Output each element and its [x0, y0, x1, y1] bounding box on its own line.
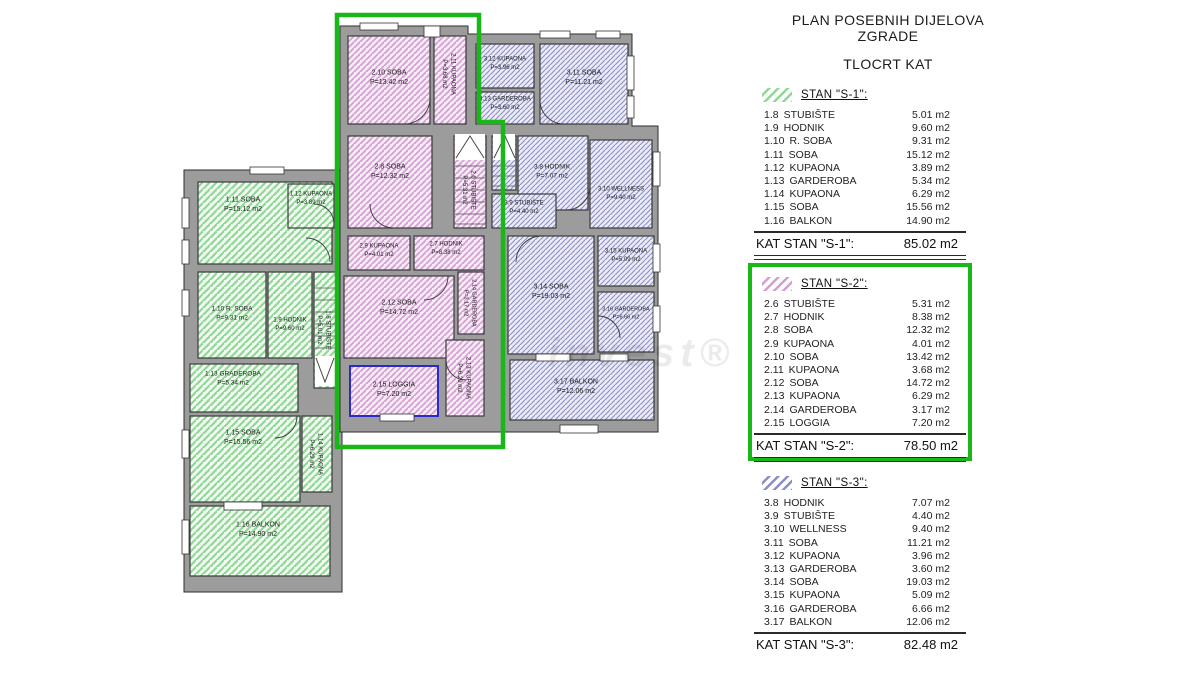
window-slot [360, 23, 398, 30]
window-slot [653, 306, 660, 332]
row-area-value: 6.29 m2 [912, 188, 950, 201]
row-area-value: 19.03 m2 [906, 576, 950, 589]
row-label: 3.12KUPAONA [764, 550, 840, 563]
room-1.16: 1.16 BALKONP=14.90 m2 [190, 506, 330, 576]
row-area-value: 6.66 m2 [912, 603, 950, 616]
table-row: 2.15LOGGIA7.20 m2 [764, 417, 950, 430]
row-number: 2.8 [764, 324, 779, 337]
row-label: 1.16BALKON [764, 215, 832, 228]
row-label: 1.8STUBIŠTE [764, 109, 835, 122]
total-value: 85.02 m2 [904, 236, 958, 251]
table-row: 1.11SOBA15.12 m2 [764, 149, 950, 162]
table-row: 3.14SOBA19.03 m2 [764, 576, 950, 589]
window-slot [380, 414, 414, 421]
row-label: 2.7HODNIK [764, 311, 824, 324]
window-slot [653, 244, 660, 272]
row-area-value: 5.09 m2 [912, 589, 950, 602]
row-number: 1.10 [764, 135, 784, 148]
row-area-value: 5.34 m2 [912, 175, 950, 188]
window-slot [596, 31, 620, 38]
table-row: 3.8HODNIK7.07 m2 [764, 497, 950, 510]
table-row: 1.14KUPAONA6.29 m2 [764, 188, 950, 201]
apartment-table-s3: STAN "S-3":3.8HODNIK7.07 m23.9STUBIŠTE4.… [754, 476, 966, 654]
row-label: 1.12KUPAONA [764, 162, 840, 175]
room-2.12: 2.12 SOBAP=14.72 m2 [344, 276, 454, 358]
room-3.10: 3.10 WELLNESSP=9.40 m2 [590, 140, 652, 228]
window-slot [250, 167, 284, 174]
row-area-value: 9.40 m2 [912, 523, 950, 536]
table-row: 3.12KUPAONA3.96 m2 [764, 550, 950, 563]
table-row: 2.14GARDEROBA3.17 m2 [764, 404, 950, 417]
row-label: 2.11KUPAONA [764, 364, 839, 377]
table-row: 1.12KUPAONA3.89 m2 [764, 162, 950, 175]
table-row: 2.7HODNIK8.38 m2 [764, 311, 950, 324]
room-1.12: 1.12 KUPAONAP=3.89 m2 [288, 184, 334, 228]
room-2.7: 2.7 HODNIKP=8.38 m2 [414, 236, 484, 270]
row-number: 3.9 [764, 510, 779, 523]
row-area-value: 5.31 m2 [912, 298, 950, 311]
window-slot [182, 290, 189, 316]
table-row: 1.10R. SOBA9.31 m2 [764, 135, 950, 148]
double-rule [754, 457, 966, 462]
row-number: 2.12 [764, 377, 784, 390]
row-area-value: 3.17 m2 [912, 404, 950, 417]
room-2.10: 2.10 SOBAP=13.42 m2 [348, 36, 430, 124]
room-2.15: 2.15 LOGGIAP=7.20 m2 [350, 366, 438, 416]
row-number: 2.6 [764, 298, 779, 311]
table-row: 3.9STUBIŠTE4.40 m2 [764, 510, 950, 523]
total-row: KAT STAN "S-3":82.48 m2 [754, 632, 966, 654]
table-header-label: STAN "S-1": [801, 89, 868, 101]
row-label: 3.15KUPAONA [764, 589, 840, 602]
row-area-value: 7.20 m2 [912, 417, 950, 430]
row-label: 2.9KUPAONA [764, 338, 834, 351]
table-header-label: STAN "S-3": [801, 477, 868, 489]
row-number: 3.16 [764, 603, 784, 616]
room-1.9: 1.9 HODNIKP=9.60 m2 [268, 272, 312, 358]
table-row: 2.12SOBA14.72 m2 [764, 377, 950, 390]
window-slot [560, 425, 598, 433]
total-value: 82.48 m2 [904, 637, 958, 652]
window-slot [182, 240, 189, 264]
row-label: 2.15LOGGIA [764, 417, 830, 430]
row-area-value: 5.01 m2 [912, 109, 950, 122]
row-area-value: 9.60 m2 [912, 122, 950, 135]
room-2.11: 2.11 KUPAONAP=3.68 m2 [434, 36, 466, 124]
row-number: 3.12 [764, 550, 784, 563]
page-subtitle: TLOCRT KAT [760, 56, 1016, 72]
row-label: 1.13GARDEROBA [764, 175, 857, 188]
titles-block: PLAN POSEBNIH DIJELOVA ZGRADE TLOCRT KAT [760, 12, 1016, 72]
table-row: 1.15SOBA15.56 m2 [764, 201, 950, 214]
table-header-s3: STAN "S-3": [762, 476, 966, 490]
row-number: 2.14 [764, 404, 784, 417]
table-header-s2: STAN "S-2": [762, 277, 966, 291]
row-area-value: 9.31 m2 [912, 135, 950, 148]
table-row: 3.11SOBA11.21 m2 [764, 537, 950, 550]
floor-plan-svg: 1.11 SOBAP=15.12 m21.12 KUPAONAP=3.89 m2… [0, 0, 740, 675]
row-label: 3.14SOBA [764, 576, 819, 589]
total-row: KAT STAN "S-1":85.02 m2 [754, 231, 966, 253]
apartment-table-s2: STAN "S-2":2.6STUBIŠTE5.31 m22.7HODNIK8.… [754, 277, 966, 462]
table-row: 3.13GARDEROBA3.60 m2 [764, 563, 950, 576]
row-label: 2.8SOBA [764, 324, 813, 337]
row-area-value: 11.21 m2 [907, 537, 950, 550]
hatch-swatch-s1 [762, 88, 792, 102]
window-slot [653, 152, 660, 186]
table-header-s1: STAN "S-1": [762, 88, 966, 102]
window-slot [182, 430, 189, 458]
row-number: 1.8 [764, 109, 779, 122]
table-row: 3.16GARDEROBA6.66 m2 [764, 603, 950, 616]
row-label: 2.10SOBA [764, 351, 819, 364]
row-label: 3.8HODNIK [764, 497, 824, 510]
row-number: 1.11 [764, 149, 784, 162]
table-row: 2.11KUPAONA3.68 m2 [764, 364, 950, 377]
room-3.13: 3.13 GARDEROBAP=3.60 m2 [476, 92, 534, 124]
window-slot [540, 31, 570, 38]
row-label: 2.6STUBIŠTE [764, 298, 835, 311]
row-area-value: 3.89 m2 [912, 162, 950, 175]
window-slot [224, 502, 262, 510]
table-row: 1.9HODNIK9.60 m2 [764, 122, 950, 135]
table-rows: 3.8HODNIK7.07 m23.9STUBIŠTE4.40 m23.10WE… [754, 497, 966, 629]
table-row: 3.15KUPAONA5.09 m2 [764, 589, 950, 602]
row-label: 1.9HODNIK [764, 122, 824, 135]
window-slot [627, 56, 634, 90]
row-area-value: 4.01 m2 [912, 338, 950, 351]
row-label: 1.11SOBA [764, 149, 818, 162]
row-label: 2.13KUPAONA [764, 390, 840, 403]
row-number: 3.17 [764, 616, 784, 629]
total-label: KAT STAN "S-1": [756, 236, 854, 251]
row-number: 3.14 [764, 576, 784, 589]
row-label: 2.14GARDEROBA [764, 404, 857, 417]
row-number: 3.13 [764, 563, 784, 576]
total-value: 78.50 m2 [904, 438, 958, 453]
row-area-value: 12.32 m2 [906, 324, 950, 337]
row-number: 2.7 [764, 311, 779, 324]
row-label: 3.11SOBA [764, 537, 818, 550]
table-row: 1.13GARDEROBA5.34 m2 [764, 175, 950, 188]
row-number: 1.12 [764, 162, 784, 175]
row-label: 3.10WELLNESS [764, 523, 847, 536]
row-number: 3.11 [764, 537, 784, 550]
row-label: 1.14KUPAONA [764, 188, 840, 201]
hatch-swatch-s2 [762, 277, 792, 291]
row-label: 3.9STUBIŠTE [764, 510, 835, 523]
row-number: 2.10 [764, 351, 784, 364]
row-area-value: 6.29 m2 [912, 390, 950, 403]
table-header-label: STAN "S-2": [801, 278, 868, 290]
row-label: 3.17BALKON [764, 616, 832, 629]
row-area-value: 13.42 m2 [906, 351, 950, 364]
row-number: 3.10 [764, 523, 784, 536]
room-1.15: 1.15 SOBAP=15.56 m2 [190, 416, 300, 502]
table-row: 2.13KUPAONA6.29 m2 [764, 390, 950, 403]
row-number: 2.9 [764, 338, 779, 351]
hatch-swatch-s3 [762, 476, 792, 490]
table-row: 3.10WELLNESS9.40 m2 [764, 523, 950, 536]
plan-document: 1.11 SOBAP=15.12 m21.12 KUPAONAP=3.89 m2… [0, 0, 1200, 675]
row-area-value: 7.07 m2 [912, 497, 950, 510]
table-row: 2.10SOBA13.42 m2 [764, 351, 950, 364]
room-1.10: 1.10 R. SOBAP=9.31 m2 [198, 272, 266, 358]
row-number: 1.16 [764, 215, 784, 228]
apartment-table-s1: STAN "S-1":1.8STUBIŠTE5.01 m21.9HODNIK9.… [754, 88, 966, 260]
total-row: KAT STAN "S-2":78.50 m2 [754, 433, 966, 455]
table-row: 2.9KUPAONA4.01 m2 [764, 338, 950, 351]
row-number: 2.15 [764, 417, 784, 430]
row-number: 3.8 [764, 497, 779, 510]
room-2.14: 2.14 GARDEROBAP=3.17 m2 [458, 272, 484, 334]
window-slot [182, 198, 189, 228]
total-label: KAT STAN "S-2": [756, 438, 854, 453]
room-3.15: 3.15 KUPAONAP=5.09 m2 [598, 236, 654, 286]
row-label: 1.15SOBA [764, 201, 819, 214]
table-row: 1.16BALKON14.90 m2 [764, 215, 950, 228]
table-row: 3.17BALKON12.06 m2 [764, 616, 950, 629]
window-slot [627, 96, 634, 118]
row-number: 3.15 [764, 589, 784, 602]
row-label: 2.12SOBA [764, 377, 819, 390]
row-area-value: 3.60 m2 [912, 563, 950, 576]
row-number: 1.14 [764, 188, 784, 201]
room-2.13: 2.13 KUPAONAP=6.29 m2 [446, 340, 484, 416]
room-3.11: 3.11 SOBAP=11.21 m2 [540, 44, 628, 124]
table-row: 2.8SOBA12.32 m2 [764, 324, 950, 337]
row-area-value: 15.56 m2 [906, 201, 950, 214]
room-2.8: 2.8 SOBAP=12.32 m2 [348, 136, 432, 228]
row-area-value: 12.06 m2 [906, 616, 950, 629]
row-number: 1.13 [764, 175, 784, 188]
page-title: PLAN POSEBNIH DIJELOVA ZGRADE [760, 12, 1016, 44]
table-row: 1.8STUBIŠTE5.01 m2 [764, 109, 950, 122]
row-number: 2.13 [764, 390, 784, 403]
row-number: 1.9 [764, 122, 779, 135]
double-rule [754, 255, 966, 260]
room-1.14: 1.14 KUPAONAP=6.29 m2 [302, 416, 332, 492]
row-area-value: 14.90 m2 [906, 215, 950, 228]
table-rows: 2.6STUBIŠTE5.31 m22.7HODNIK8.38 m22.8SOB… [754, 298, 966, 430]
window-slot [182, 520, 189, 554]
row-area-value: 3.68 m2 [912, 364, 950, 377]
row-area-value: 8.38 m2 [912, 311, 950, 324]
room-3.12: 3.12 KUPAONAP=3.96 m2 [476, 44, 534, 88]
total-label: KAT STAN "S-3": [756, 637, 854, 652]
row-area-value: 4.40 m2 [912, 510, 950, 523]
row-area-value: 14.72 m2 [906, 377, 950, 390]
row-area-value: 15.12 m2 [906, 149, 950, 162]
window-slot [424, 26, 440, 37]
row-number: 1.15 [764, 201, 784, 214]
row-label: 3.13GARDEROBA [764, 563, 857, 576]
row-label: 1.10R. SOBA [764, 135, 832, 148]
table-rows: 1.8STUBIŠTE5.01 m21.9HODNIK9.60 m21.10R.… [754, 109, 966, 228]
watermark: invest® [548, 331, 735, 375]
row-label: 3.16GARDEROBA [764, 603, 857, 616]
row-area-value: 3.96 m2 [912, 550, 950, 563]
room-2.9: 2.9 KUPAONAP=4.01 m2 [348, 236, 410, 270]
row-number: 2.11 [764, 364, 784, 377]
room-1.13: 1.13 GRADEROBAP=5.34 m2 [190, 364, 298, 412]
table-row: 2.6STUBIŠTE5.31 m2 [764, 298, 950, 311]
